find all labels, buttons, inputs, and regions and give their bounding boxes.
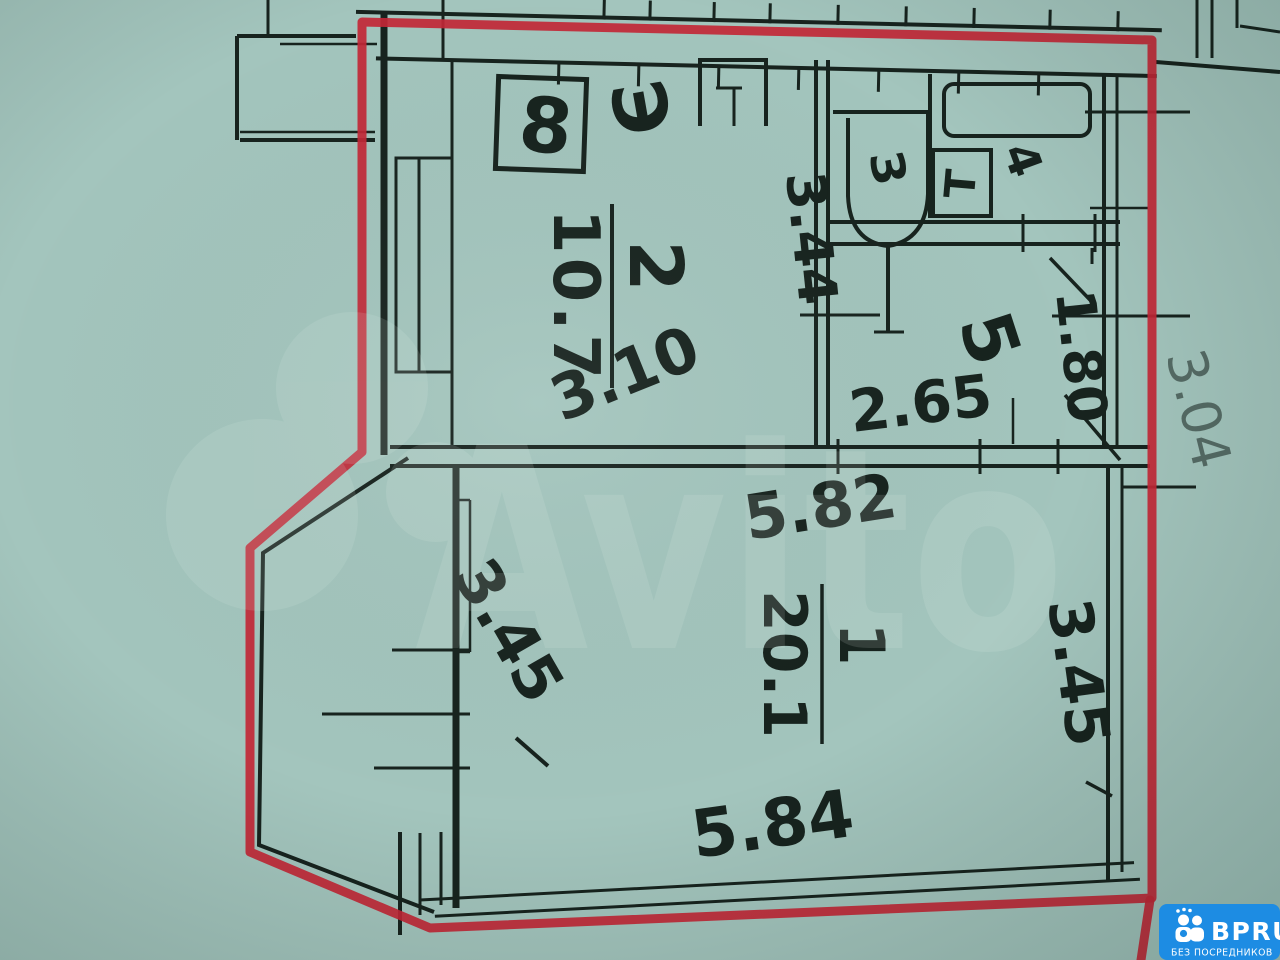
logo-subtitle: БЕЗ ПОСРЕДНИКОВ — [1171, 948, 1273, 959]
bpru-logo[interactable]: BPRU БЕЗ ПОСРЕДНИКОВ — [1159, 904, 1280, 960]
floor-plan-svg: 8 Э 2 10.7 3.10 3.44 З Т 4 5 2.65 1.80 3… — [0, 0, 1280, 960]
photo-vignette — [0, 0, 1280, 960]
floor-plan-photo: 8 Э 2 10.7 3.10 3.44 З Т 4 5 2.65 1.80 3… — [0, 0, 1280, 960]
logo-title: BPRU — [1211, 917, 1280, 946]
